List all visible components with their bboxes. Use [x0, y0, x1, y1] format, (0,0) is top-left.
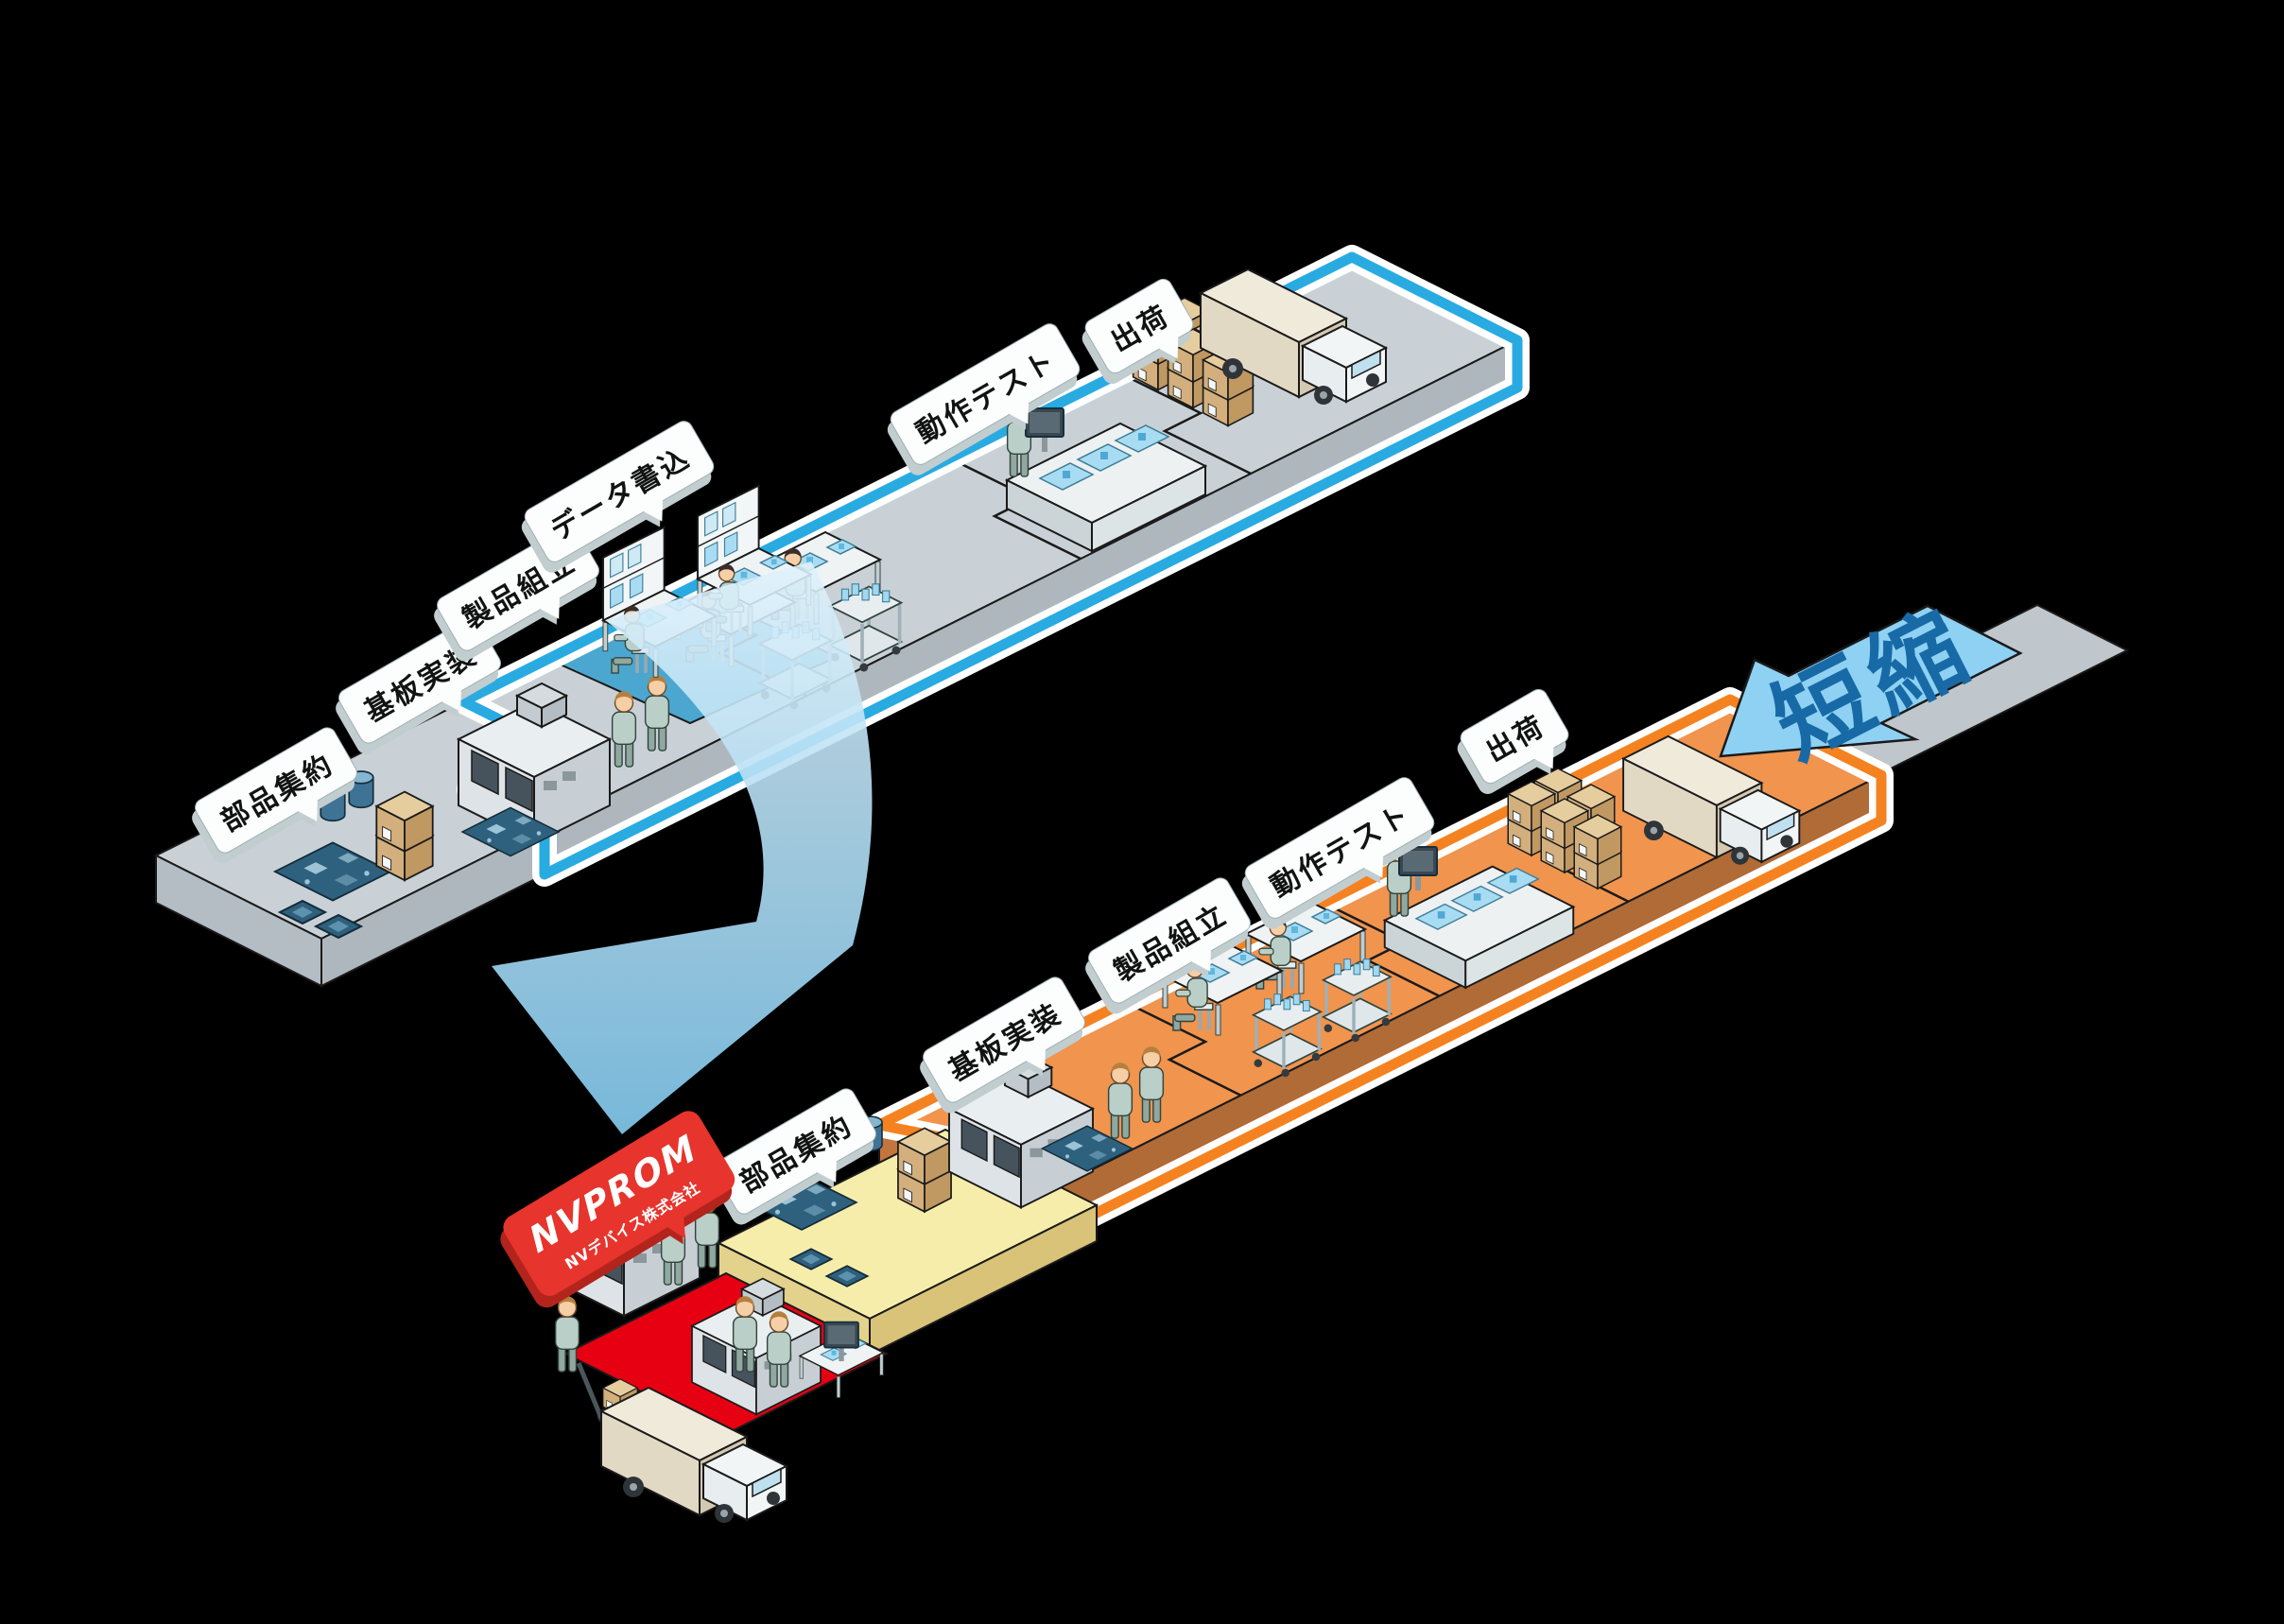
carton-stack	[898, 1128, 951, 1211]
diagram-canvas: 部品集約 基板実装 製品組立 データ書込 動作テスト 出荷 部品集約 基板実装 …	[0, 0, 2284, 1624]
worker	[556, 1296, 580, 1372]
carton-stack	[376, 792, 432, 881]
carton-stack	[1574, 815, 1621, 889]
isometric-scene	[0, 0, 2284, 1624]
